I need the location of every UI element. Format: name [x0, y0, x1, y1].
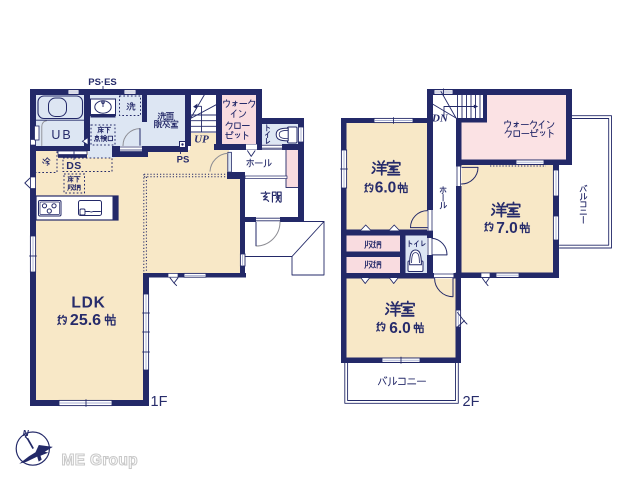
svg-text:UP: UP [194, 134, 209, 146]
svg-text:PS·ES: PS·ES [88, 77, 117, 88]
svg-text:PS: PS [177, 155, 190, 166]
svg-text:ME Group: ME Group [62, 452, 138, 469]
svg-text:6.0: 6.0 [375, 179, 397, 196]
svg-text:2F: 2F [463, 394, 480, 410]
svg-text:6.0: 6.0 [389, 320, 411, 337]
svg-text:LDK: LDK [71, 295, 105, 312]
svg-text:UB: UB [51, 128, 72, 142]
svg-text:1F: 1F [151, 394, 168, 410]
svg-text:7.0: 7.0 [496, 220, 518, 237]
svg-text:DN: DN [431, 113, 449, 125]
svg-text:25.6: 25.6 [70, 312, 101, 329]
svg-text:DS: DS [66, 160, 82, 172]
